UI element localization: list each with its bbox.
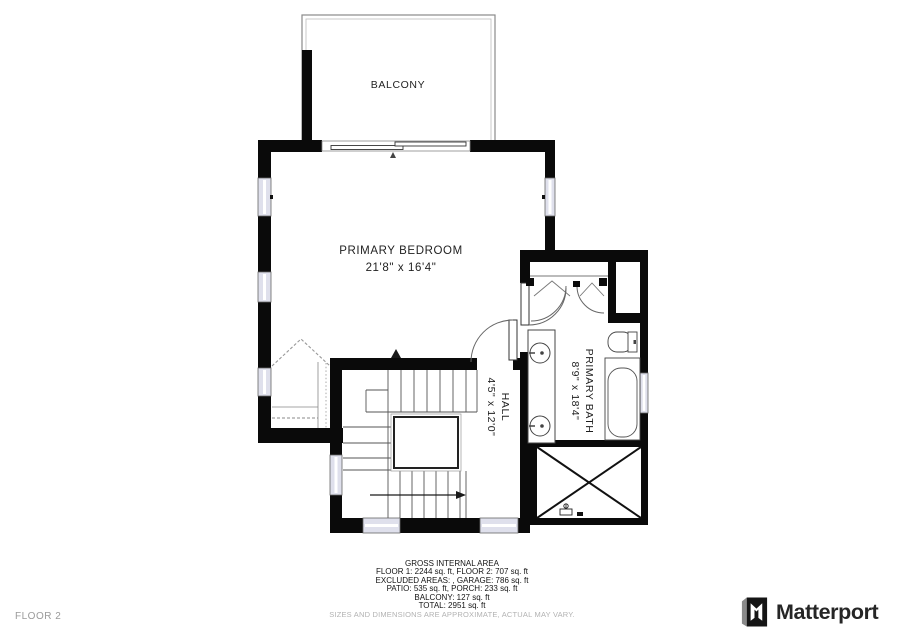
- closet-doors: [526, 278, 607, 321]
- floor-number-label: FLOOR 2: [15, 611, 61, 622]
- entry-marker: [390, 152, 396, 158]
- svg-text:HALL: HALL: [499, 393, 511, 422]
- svg-text:21'8" x 16'4": 21'8" x 16'4": [366, 262, 437, 274]
- top-wall-right: [470, 140, 555, 152]
- closet-wall: [608, 262, 616, 320]
- vanity: [528, 330, 555, 443]
- floorplan-page: BALCONY PRIMARY BEDROOM 21'8" x 16'4" PR…: [0, 0, 905, 640]
- window: [258, 178, 273, 216]
- balcony-left-wall: [302, 50, 312, 142]
- window: [640, 373, 648, 413]
- svg-text:PRIMARY BEDROOM: PRIMARY BEDROOM: [339, 245, 463, 257]
- disclaimer-text: SIZES AND DIMENSIONS ARE APPROXIMATE, AC…: [252, 611, 652, 619]
- matterport-logo: Matterport: [739, 595, 878, 629]
- window: [542, 178, 555, 216]
- sliding-door: [322, 141, 470, 158]
- primary-bedroom-label: PRIMARY BEDROOM 21'8" x 16'4": [339, 245, 463, 274]
- window: [258, 368, 271, 396]
- matterport-m-icon: [739, 595, 770, 629]
- stair-direction-arrow: [370, 349, 466, 499]
- toilet-icon: [608, 332, 637, 352]
- area-summary: GROSS INTERNAL AREA FLOOR 1: 2244 sq. ft…: [252, 560, 652, 620]
- door-bedroom-to-hall: [471, 320, 517, 362]
- primary-bath-label: PRIMARY BATH 8'9" x 18'4": [569, 349, 595, 434]
- floor-plan-canvas: BALCONY PRIMARY BEDROOM 21'8" x 16'4" PR…: [0, 0, 905, 560]
- svg-text:PRIMARY BATH: PRIMARY BATH: [583, 349, 595, 434]
- window: [363, 518, 400, 533]
- hall-label: HALL 4'5" x 12'0": [485, 378, 511, 437]
- svg-text:8'9" x 18'4": 8'9" x 18'4": [569, 362, 581, 421]
- brand-wordmark: Matterport: [776, 600, 878, 625]
- window: [480, 518, 518, 533]
- closet-interior: [530, 276, 608, 296]
- balcony-label: BALCONY: [371, 79, 425, 91]
- svg-text:4'5" x 12'0": 4'5" x 12'0": [485, 378, 497, 437]
- bathtub-icon: [605, 358, 640, 440]
- area-summary-line: TOTAL: 2951 sq. ft: [252, 602, 652, 610]
- staircase: [343, 349, 477, 518]
- open-to-below-void: [530, 440, 648, 525]
- window: [330, 455, 342, 495]
- bath-top-wall: [520, 250, 648, 262]
- alcove: [272, 339, 330, 428]
- window: [258, 272, 271, 302]
